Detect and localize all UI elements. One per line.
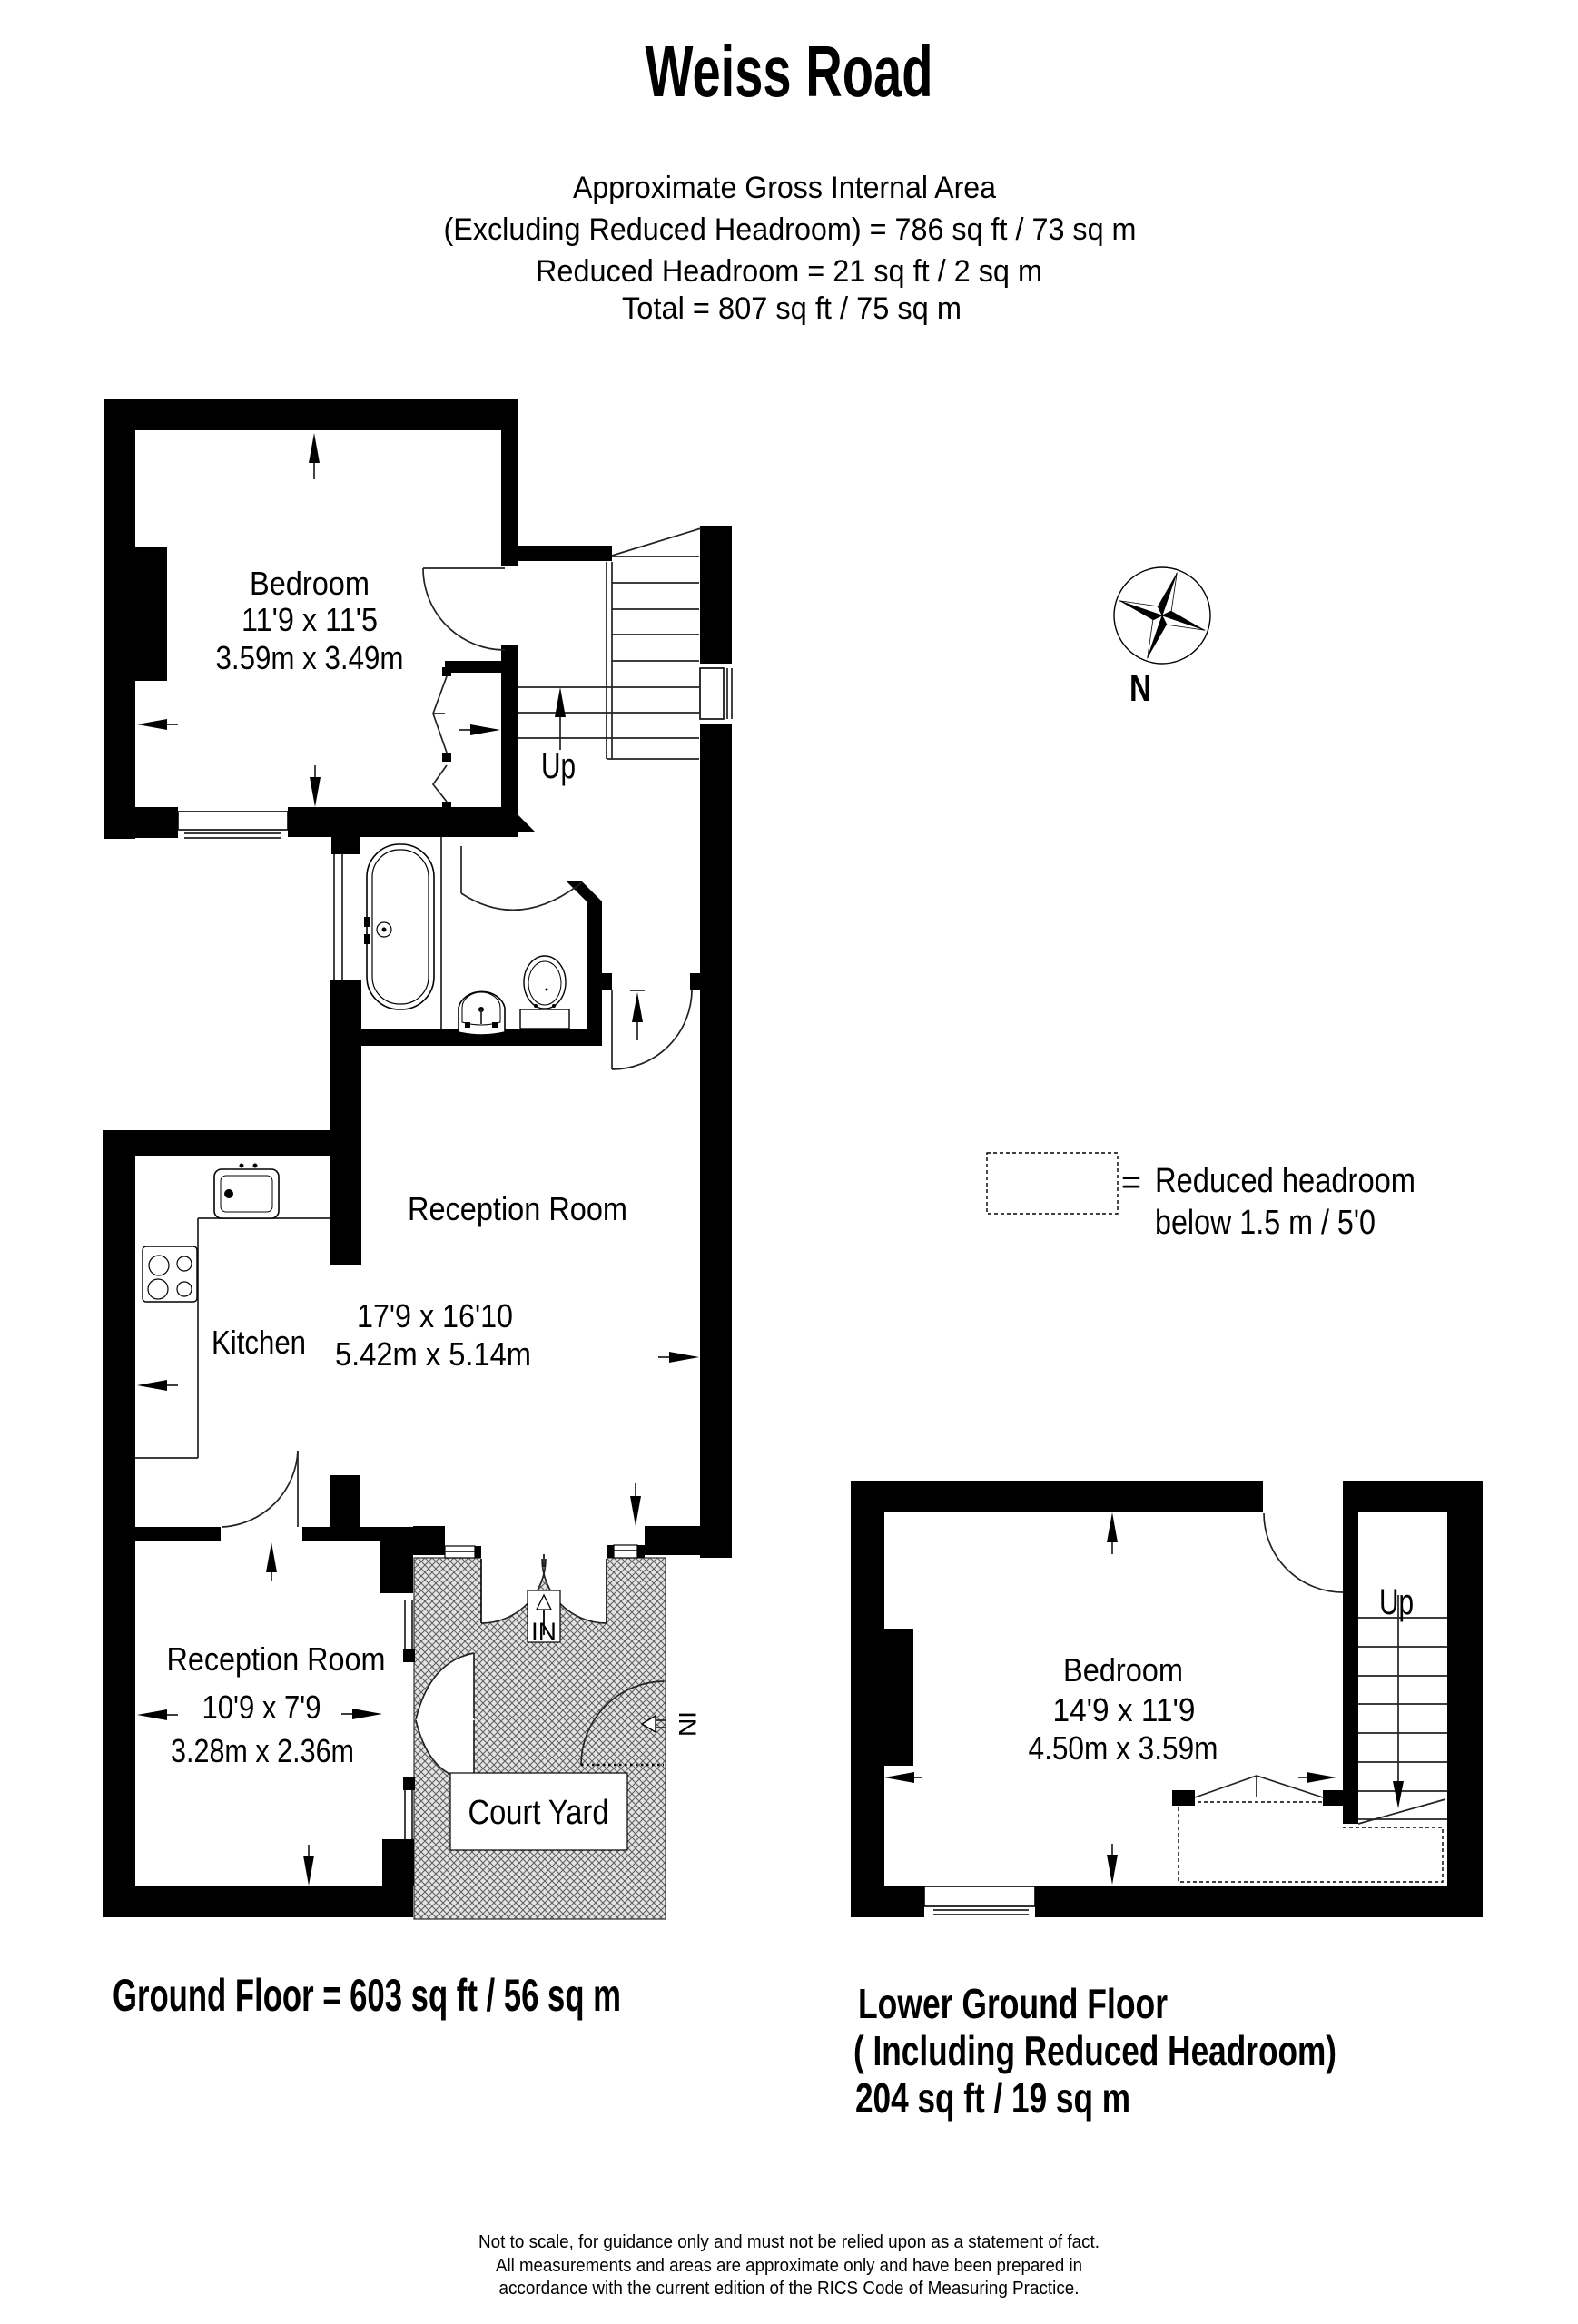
svg-text:Bedroom: Bedroom <box>250 565 370 602</box>
svg-text:Approximate Gross Internal Are: Approximate Gross Internal Area <box>573 171 996 205</box>
svg-text:(Excluding Reduced Headroom) =: (Excluding Reduced Headroom) = 786 sq ft… <box>444 212 1137 247</box>
svg-text:Ground Floor = 603 sq ft / 56: Ground Floor = 603 sq ft / 56 sq m <box>113 1970 621 2021</box>
svg-text:5.42m x 5.14m: 5.42m x 5.14m <box>335 1335 531 1373</box>
svg-text:14'9 x 11'9: 14'9 x 11'9 <box>1053 1691 1196 1728</box>
svg-text:11'9 x 11'5: 11'9 x 11'5 <box>242 601 378 638</box>
svg-text:Reception Room: Reception Room <box>167 1640 386 1678</box>
svg-text:( Including Reduced Headroom): ( Including Reduced Headroom) <box>853 2027 1336 2074</box>
svg-text:Total = 807 sq ft / 75 sq m: Total = 807 sq ft / 75 sq m <box>622 291 962 326</box>
svg-text:4.50m x 3.59m: 4.50m x 3.59m <box>1029 1729 1218 1767</box>
svg-text:Reception Room: Reception Room <box>408 1190 627 1227</box>
svg-text:Court Yard: Court Yard <box>468 1794 609 1832</box>
svg-text:IN: IN <box>674 1711 701 1737</box>
svg-text:204 sq ft / 19 sq m: 204 sq ft / 19 sq m <box>855 2074 1130 2122</box>
svg-text:below 1.5 m / 5'0: below 1.5 m / 5'0 <box>1155 1204 1376 1242</box>
svg-text:Kitchen: Kitchen <box>212 1324 306 1361</box>
svg-text:IN: IN <box>531 1618 557 1645</box>
svg-text:Up: Up <box>1379 1582 1414 1622</box>
svg-text:Reduced headroom: Reduced headroom <box>1155 1162 1415 1200</box>
svg-text:Not to scale, for guidance onl: Not to scale, for guidance only and must… <box>478 2232 1100 2252</box>
svg-text:N: N <box>1129 666 1151 709</box>
svg-text:Reduced Headroom = 21 sq ft /: Reduced Headroom = 21 sq ft / 2 sq m <box>536 254 1042 289</box>
svg-text:3.28m x 2.36m: 3.28m x 2.36m <box>171 1732 354 1769</box>
svg-text:accordance with the current ed: accordance with the current edition of t… <box>499 2279 1080 2299</box>
svg-text:Weiss Road: Weiss Road <box>646 31 933 112</box>
svg-text:All measurements and areas are: All measurements and areas are approxima… <box>496 2256 1082 2276</box>
svg-text:Lower Ground Floor: Lower Ground Floor <box>858 1980 1168 2027</box>
svg-text:17'9 x 16'10: 17'9 x 16'10 <box>357 1297 513 1334</box>
svg-text:Bedroom: Bedroom <box>1063 1651 1183 1689</box>
svg-text:Up: Up <box>541 746 576 786</box>
svg-text:10'9 x 7'9: 10'9 x 7'9 <box>202 1689 321 1726</box>
svg-text:=: = <box>1121 1164 1141 1202</box>
svg-text:3.59m x 3.49m: 3.59m x 3.49m <box>216 639 404 676</box>
